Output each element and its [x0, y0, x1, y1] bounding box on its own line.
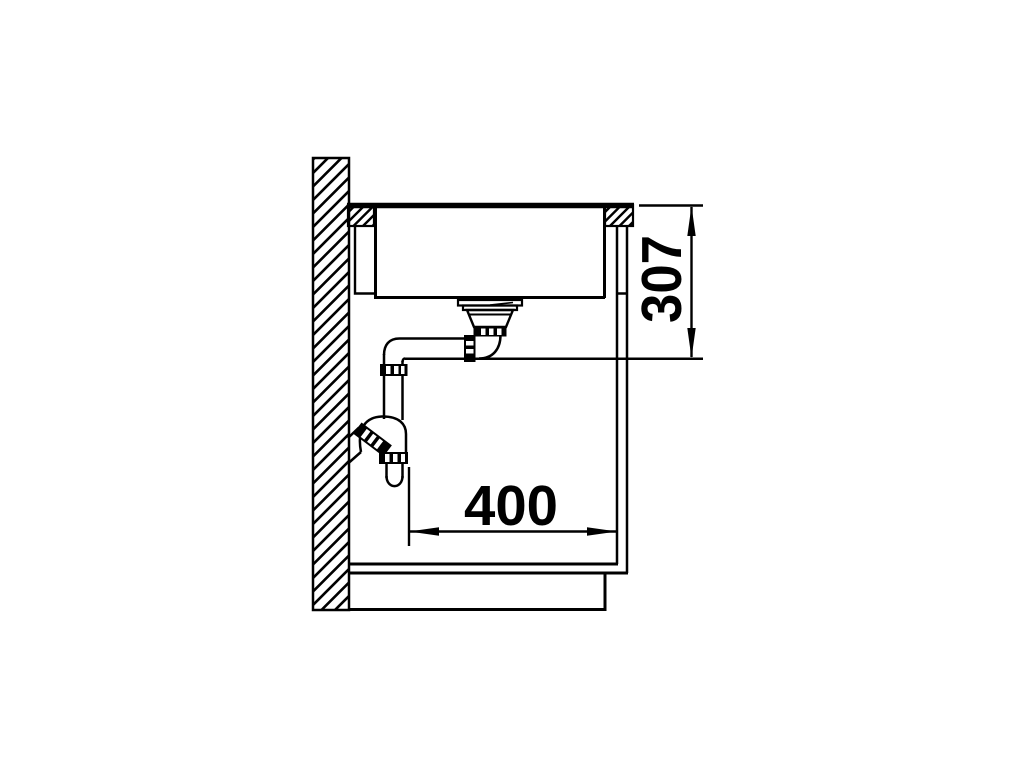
wall-hatch — [313, 158, 349, 610]
nut-slot — [394, 366, 399, 374]
nut-slot — [489, 329, 494, 336]
nut-slot — [386, 366, 391, 374]
nut-slot — [385, 454, 390, 462]
nut-slot — [466, 341, 474, 346]
pipe-nut-downpipe — [380, 364, 408, 376]
nut-slot — [481, 329, 486, 336]
pipe-nut-trap-cup — [379, 452, 408, 464]
wall-section — [313, 158, 349, 610]
nut-slot — [466, 349, 474, 354]
nut-slot — [401, 366, 405, 374]
dimension-cabinet-width-label: 400 — [464, 474, 558, 538]
nut-slot — [393, 454, 398, 462]
nut-slot — [497, 329, 502, 336]
dimension-drain-height-label: 307 — [630, 235, 694, 323]
drawing-canvas: 307 400 — [0, 0, 1024, 768]
drawing-background — [0, 0, 1024, 768]
nut-slot — [401, 454, 405, 462]
technical-drawing: 307 400 — [0, 0, 1024, 768]
